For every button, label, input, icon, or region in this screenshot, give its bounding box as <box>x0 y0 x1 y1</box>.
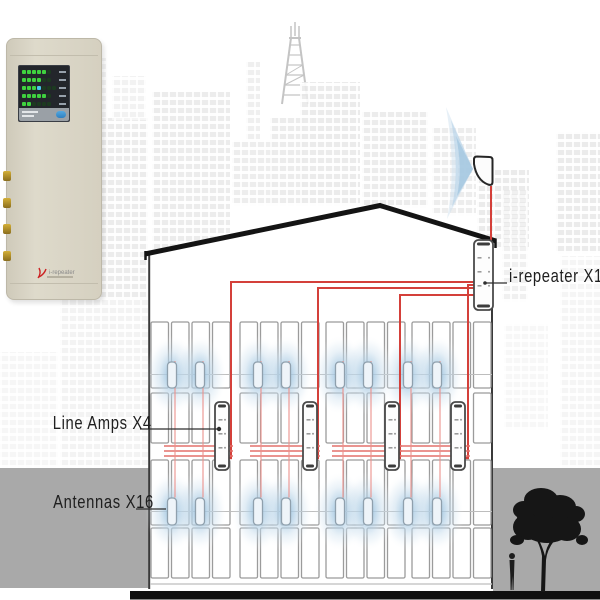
label-antennas: Antennas X16 <box>28 492 136 511</box>
street-base <box>130 591 600 600</box>
device-led-row <box>22 70 66 74</box>
led-indicator <box>37 70 41 74</box>
ceiling-antenna <box>168 498 177 525</box>
led-indicator-off <box>47 94 51 98</box>
device-seam <box>10 283 98 284</box>
device-led-row <box>22 102 66 106</box>
led-indicator <box>22 94 26 98</box>
led-indicator <box>27 86 31 90</box>
led-indicator <box>22 86 26 90</box>
device-led-row <box>22 86 66 90</box>
led-indicator <box>32 70 36 74</box>
led-indicator-off <box>42 86 46 90</box>
stage: i-repeater Line Amps X4 Antennas X16 i-r… <box>0 0 600 600</box>
led-indicator <box>32 78 36 82</box>
led-indicator-off <box>47 102 51 106</box>
led-indicator <box>27 70 31 74</box>
donor-antenna-icon <box>474 157 493 185</box>
building-window <box>474 460 492 525</box>
line-amp-unit <box>451 402 465 470</box>
device-display-panel <box>18 65 70 122</box>
led-indicator <box>37 78 41 82</box>
signal-beam-icon <box>446 107 473 219</box>
person-silhouette <box>509 553 515 590</box>
led-row-label <box>59 103 66 105</box>
ceiling-antenna <box>433 362 442 388</box>
device-button <box>56 111 66 118</box>
ceiling-antenna <box>282 498 291 525</box>
tree-silhouette <box>510 488 588 592</box>
brand-swoosh-icon <box>37 267 47 279</box>
led-indicator-off <box>32 102 36 106</box>
led-row-label <box>59 79 66 81</box>
led-indicator <box>27 94 31 98</box>
ceiling-antenna <box>433 498 442 525</box>
led-indicator-off <box>47 86 51 90</box>
led-indicator <box>27 102 31 106</box>
device-terminal <box>3 251 11 261</box>
device-terminal <box>3 171 11 181</box>
led-indicator-off <box>42 102 46 106</box>
ceiling-antenna <box>364 362 373 388</box>
ceiling-antenna <box>404 362 413 388</box>
led-indicator <box>42 94 46 98</box>
device-terminal <box>3 224 11 234</box>
led-indicator <box>22 78 26 82</box>
ceiling-antenna <box>168 362 177 388</box>
led-row-label <box>59 71 66 73</box>
ceiling-antenna <box>196 362 205 388</box>
led-indicator-off <box>42 78 46 82</box>
ceiling-antenna <box>336 362 345 388</box>
led-indicator <box>22 102 26 106</box>
led-indicator-off <box>47 70 51 74</box>
led-indicator-cyan <box>37 86 41 90</box>
led-indicator <box>32 94 36 98</box>
device-led-row <box>22 94 66 98</box>
building-window <box>474 528 492 578</box>
led-indicator-off <box>52 86 56 90</box>
device-led-row <box>22 78 66 82</box>
ceiling-antenna <box>282 362 291 388</box>
led-indicator <box>42 70 46 74</box>
label-line-amps: Line Amps X4 <box>28 413 140 432</box>
led-row-label <box>59 95 66 97</box>
ceiling-antenna <box>404 498 413 525</box>
device-brand-logo: i-repeater <box>37 267 75 279</box>
ceiling-antenna <box>254 362 263 388</box>
device-status-strip <box>19 108 69 121</box>
device-seam <box>10 55 98 56</box>
led-indicator <box>37 94 41 98</box>
repeater-unit <box>474 240 493 310</box>
led-indicator <box>22 70 26 74</box>
led-indicator-off <box>47 78 51 82</box>
building-window <box>474 393 492 443</box>
label-repeater: i-repeater X1 <box>509 266 600 285</box>
repeater-device-photo: i-repeater <box>6 38 102 300</box>
line-amp-unit <box>303 402 317 470</box>
building-window <box>474 322 492 388</box>
line-amp-unit <box>215 402 229 470</box>
device-terminal <box>3 198 11 208</box>
led-indicator <box>32 86 36 90</box>
led-indicator <box>27 78 31 82</box>
led-indicator-off <box>37 102 41 106</box>
ceiling-antenna <box>254 498 263 525</box>
line-amp-unit <box>385 402 399 470</box>
led-row-label <box>59 87 66 89</box>
ceiling-antenna <box>364 498 373 525</box>
ceiling-antenna <box>196 498 205 525</box>
ceiling-antenna <box>336 498 345 525</box>
